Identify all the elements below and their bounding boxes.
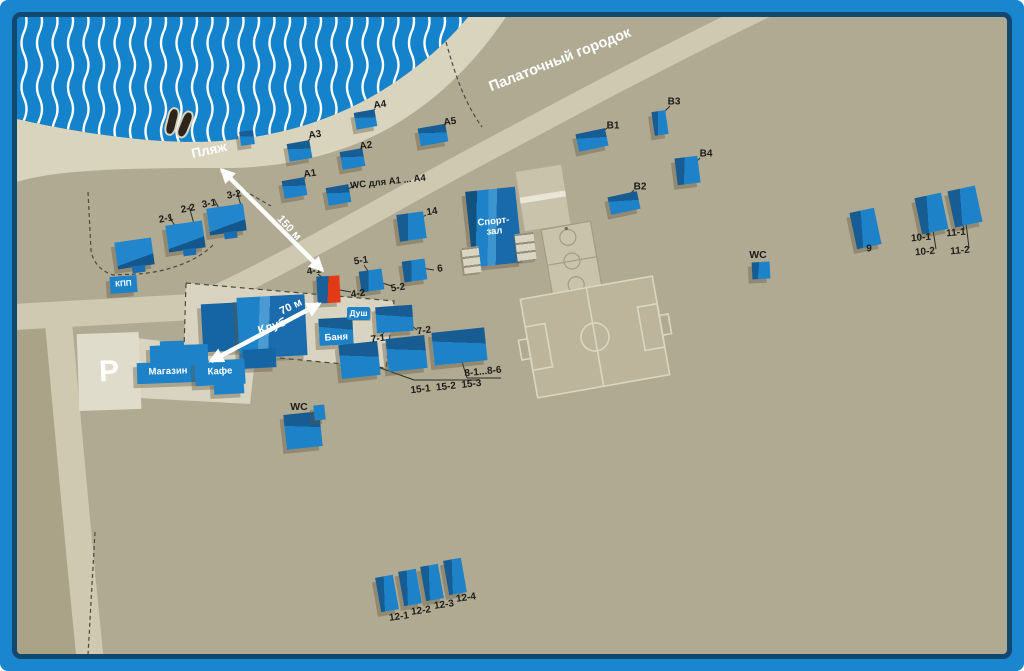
label-l11-1: 11-1 [946,227,966,240]
map-canvas: Р КППСпорт- залКлубМагазинКафеБаняДуш A1… [12,12,1012,659]
label-a1: A1 [303,168,317,181]
label-wc-a: WC для A1 ... A4 [350,173,427,192]
label-l4-2: 4-2 [350,288,366,301]
label-l10-2: 10-2 [915,246,936,259]
label-l14: 14 [426,206,439,218]
label-tent-city: Палаточный городок [487,25,634,95]
map-area: Р КППСпорт- залКлубМагазинКафеБаняДуш A1… [12,12,1012,659]
label-beach: Пляж [190,139,228,161]
labels-layer: A1A2A3A4A5WC для A1 ... A42-12-23-13-214… [12,12,1012,659]
label-lb1: B1 [607,121,620,132]
label-l5-1: 5-1 [353,255,369,268]
label-l12-2: 12-2 [410,604,431,618]
label-l12-4: 12-4 [455,591,476,605]
label-l11-2: 11-2 [950,245,970,258]
label-l12-1: 12-1 [388,610,409,624]
label-lwc-l: WC [290,401,308,413]
label-l3-1: 3-1 [201,197,217,210]
label-lwc-r: WC [749,249,767,261]
label-l8: 8-1...8-6 [464,365,502,380]
label-l5-2: 5-2 [390,282,406,295]
label-lb2: B2 [634,182,647,193]
label-l6: 6 [436,263,443,275]
label-l7-2: 7-2 [416,325,432,338]
label-l3-2: 3-2 [226,188,242,201]
label-lb3: B3 [668,97,681,108]
label-a2: A2 [359,140,373,153]
label-l4-1: 4-1 [306,265,322,278]
label-l9: 9 [866,244,872,255]
label-l10-1: 10-1 [911,232,932,245]
label-l15: 15-1 15-2 15-3 [410,378,482,396]
campsite-map: Р КППСпорт- залКлубМагазинКафеБаняДуш A1… [0,0,1024,671]
label-l2-2: 2-2 [180,202,196,215]
label-a5: A5 [443,116,457,129]
label-l7-1: 7-1 [370,333,386,346]
label-lb4: B4 [700,149,713,160]
label-a4: A4 [373,99,387,112]
label-a3: A3 [308,129,322,142]
label-l12-3: 12-3 [433,598,454,612]
label-l2-1: 2-1 [158,212,174,225]
